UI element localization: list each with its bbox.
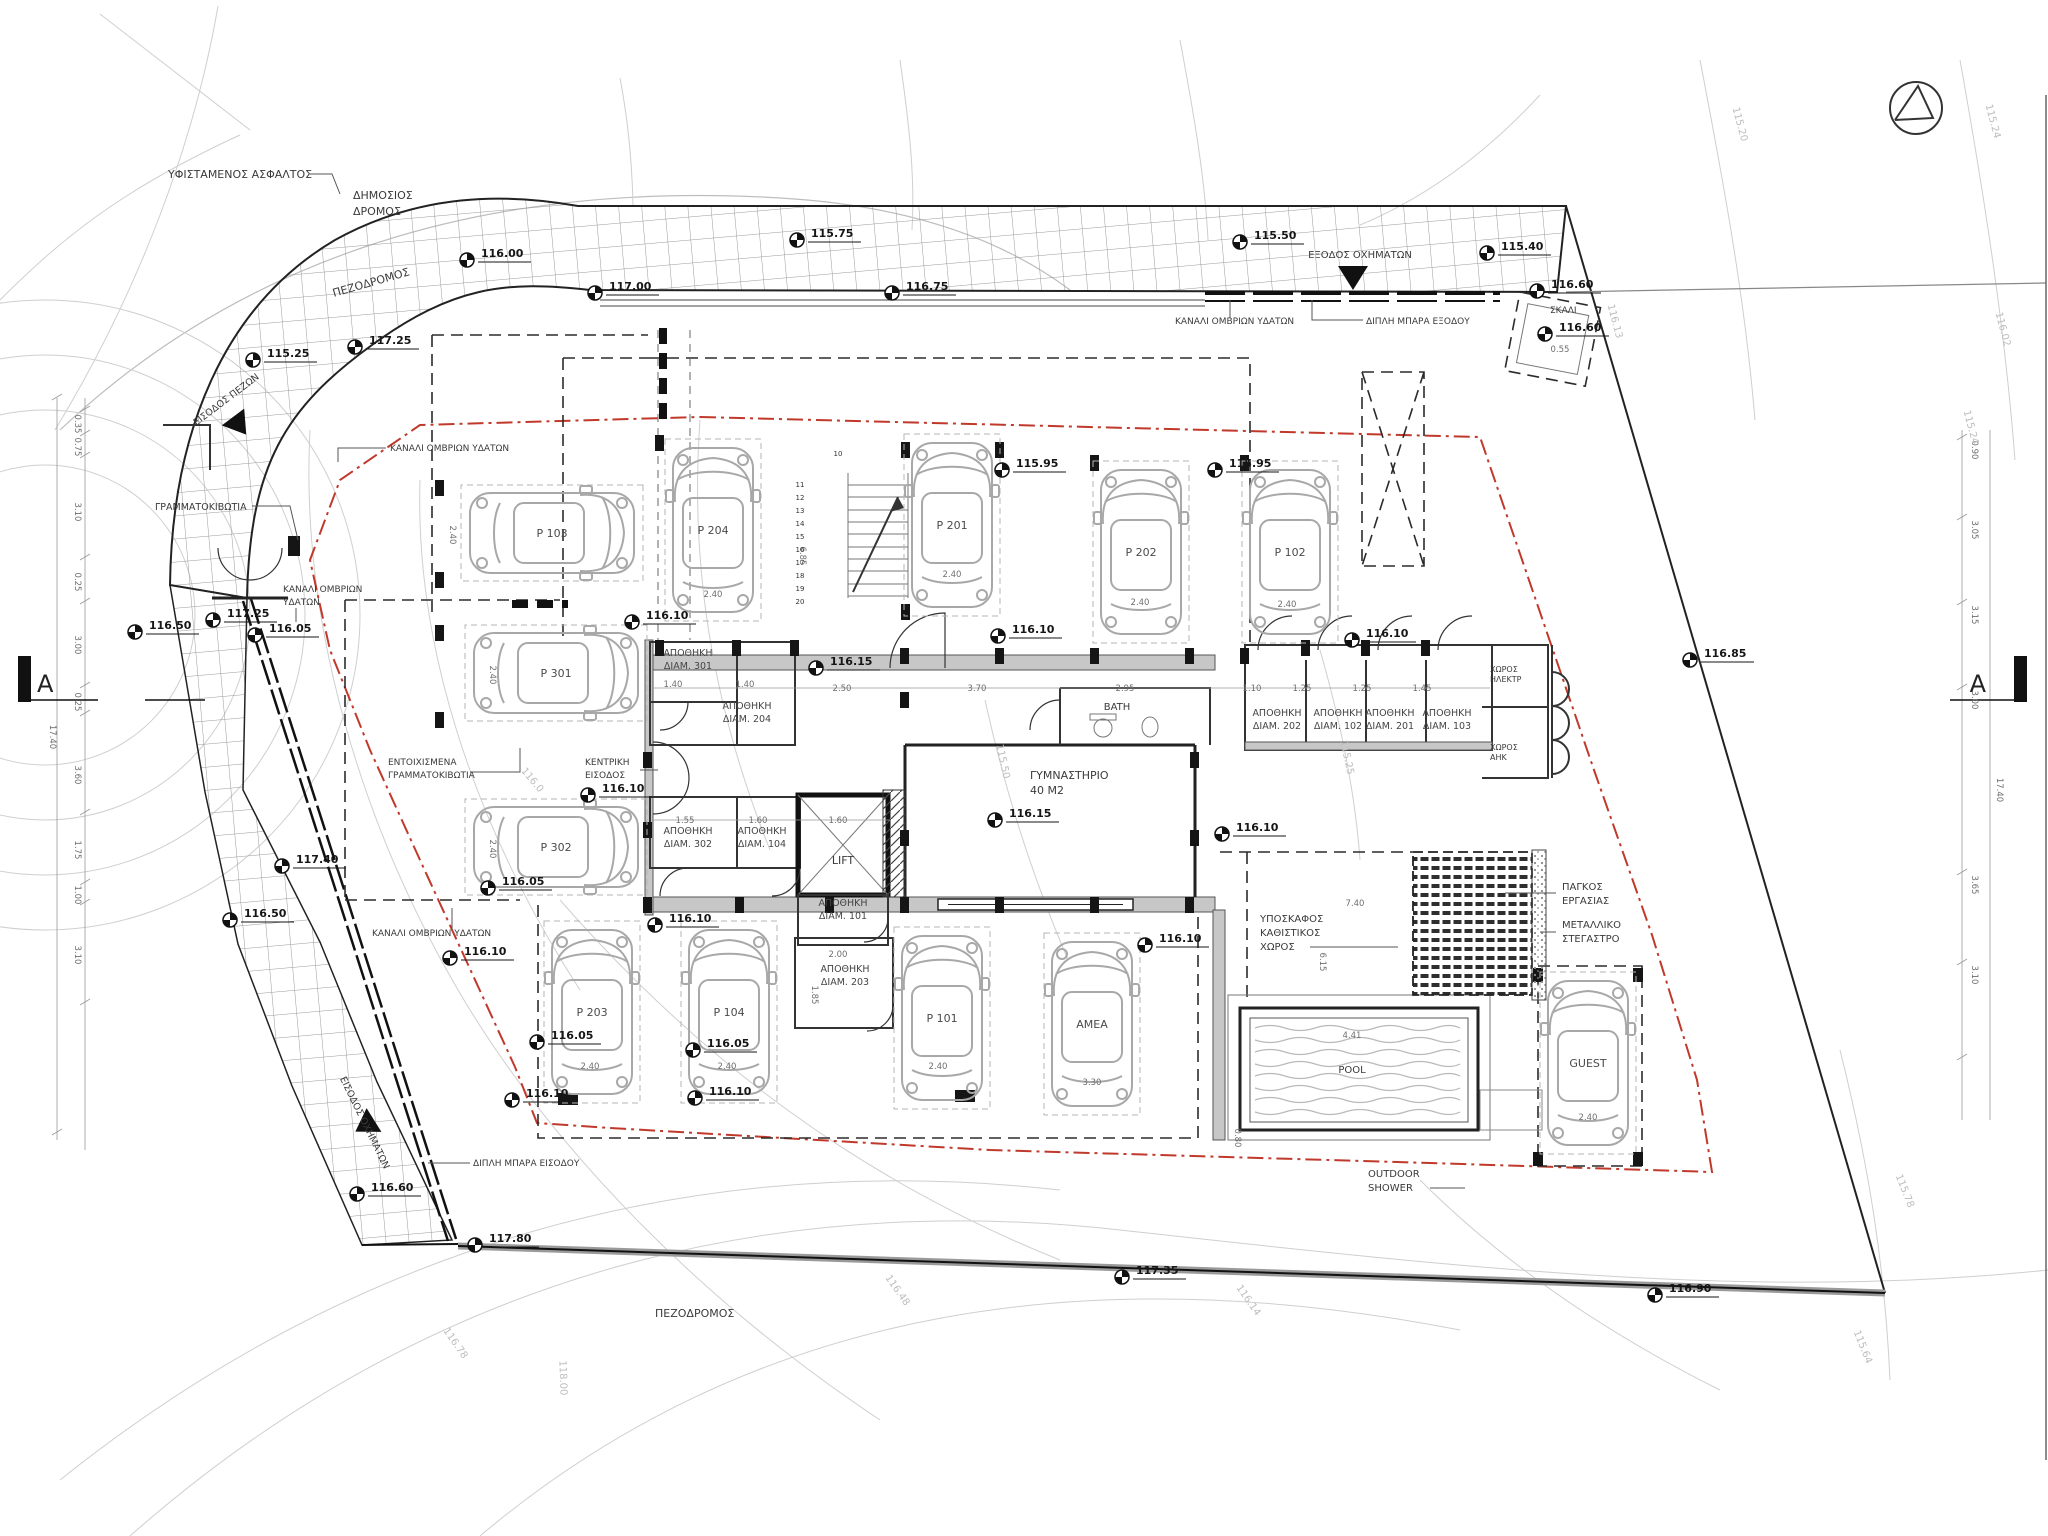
benchmark-icon — [809, 661, 823, 675]
stair-step-number: 15 — [796, 533, 805, 541]
dimension-value: 2.40 — [1278, 600, 1297, 610]
stair-step-number: 19 — [796, 585, 805, 593]
dimension-value: 3.10 — [72, 503, 82, 522]
elevation-value: 116.05 — [551, 1029, 593, 1042]
elevation-value: 115.75 — [811, 227, 853, 240]
stair-step-number: 18 — [796, 572, 805, 580]
elevation-value: 117.80 — [489, 1232, 532, 1245]
plan-label: POOL — [1338, 1065, 1366, 1076]
plan-label: ΓΥΜΝΑΣΤΗΡΙΟ — [1030, 769, 1109, 782]
dimension-value: 3.10 — [1969, 966, 1979, 985]
stair-step-number: 11 — [796, 481, 805, 489]
elevation-value: 116.10 — [1159, 932, 1202, 945]
storage-room-name: ΑΠΟΘΗΚΗ — [820, 964, 869, 975]
dimension-value: 2.40 — [487, 840, 497, 859]
stair-step-number: 13 — [796, 507, 805, 515]
dimension-value: 2.00 — [829, 950, 848, 960]
benchmark-icon — [885, 286, 899, 300]
dimension-value: 1.40 — [736, 680, 755, 690]
plan-label: ΠΕΖΟΔΡΟΜΟΣ — [655, 1307, 734, 1320]
section-letter: A — [37, 670, 54, 698]
benchmark-icon — [530, 1035, 544, 1049]
plan-label: ΗΛΕΚΤΡ — [1490, 675, 1522, 684]
plan-label: OUTDOOR — [1368, 1169, 1420, 1180]
elevation-value: 116.00 — [481, 247, 524, 260]
dimension-value: 2.40 — [718, 1062, 737, 1072]
plan-label: ΕΡΓΑΣΙΑΣ — [1562, 896, 1609, 907]
elevation-value: 116.10 — [1012, 623, 1055, 636]
benchmark-icon — [648, 918, 662, 932]
storage-room-name: ΑΠΟΘΗΚΗ — [663, 826, 712, 837]
storage-room-apartment: ΔΙΑΜ. 203 — [821, 977, 869, 988]
dimension-value: 0.75 — [72, 438, 82, 457]
elevation-value: 116.10 — [526, 1087, 569, 1100]
stair-step-number: 16 — [796, 546, 805, 554]
benchmark-icon — [1538, 327, 1552, 341]
plan-label: ΕΝΤΟΙΧΙΣΜΕΝΑ — [388, 758, 457, 768]
benchmark-icon — [995, 463, 1009, 477]
dimension-value: 2.40 — [943, 570, 962, 580]
elevation-value: 116.10 — [1236, 821, 1279, 834]
storage-room-apartment: ΔΙΑΜ. 103 — [1423, 721, 1471, 732]
elevation-value: 117.35 — [1136, 1264, 1178, 1277]
storage-room-apartment: ΔΙΑΜ. 202 — [1253, 721, 1301, 732]
storage-room-name: ΑΠΟΘΗΚΗ — [1422, 708, 1471, 719]
plan-label: ΧΩΡΟΣ — [1490, 743, 1518, 752]
benchmark-icon — [468, 1238, 482, 1252]
elevation-value: 116.60 — [1559, 321, 1602, 334]
parking-stall-label: P 301 — [540, 667, 571, 680]
elevation-value: 115.40 — [1501, 240, 1544, 253]
parking-stall-label: P 103 — [536, 527, 567, 540]
benchmark-icon — [223, 913, 237, 927]
elevation-value: 116.10 — [464, 945, 507, 958]
dimension-value: 2.40 — [581, 1062, 600, 1072]
benchmark-icon — [1648, 1288, 1662, 1302]
plan-label: ΕΙΣΟΔΟΣ — [585, 771, 625, 781]
plan-label: ΧΩΡΟΣ — [1260, 942, 1295, 953]
storage-room-name: ΑΠΟΘΗΚΗ — [1252, 708, 1301, 719]
dimension-value: 1.40 — [664, 680, 683, 690]
plan-label: ΚΑΝΑΛΙ ΟΜΒΡΙΩΝ ΥΔΑΤΩΝ — [372, 929, 491, 939]
elevation-value: 116.10 — [646, 609, 689, 622]
plan-label: ΣΤΕΓΑΣΤΡΟ — [1562, 934, 1620, 945]
parking-stall-label: GUEST — [1569, 1057, 1607, 1070]
storage-room-name: ΑΠΟΘΗΚΗ — [663, 648, 712, 659]
elevation-value: 117.25 — [227, 607, 269, 620]
dimension-value: 17.40 — [1994, 778, 2004, 802]
stair-step-number: 12 — [796, 494, 805, 502]
elevation-value: 115.95 — [1229, 457, 1271, 470]
dimension-value: 0.55 — [1551, 345, 1570, 355]
dimension-value: 17.40 — [47, 725, 57, 749]
elevation-value: 116.05 — [502, 875, 544, 888]
benchmark-icon — [790, 233, 804, 247]
benchmark-icon — [1115, 1270, 1129, 1284]
plan-label: ΣΚΑΛΙ — [1550, 306, 1577, 316]
dimension-value: 2.40 — [487, 666, 497, 685]
benchmark-icon — [988, 813, 1002, 827]
plan-label: ΔΙΠΛΗ ΜΠΑΡΑ ΕΞΟΔΟΥ — [1366, 317, 1470, 327]
plan-label: ΚΑΝΑΛΙ ΟΜΒΡΙΩΝ ΥΔΑΤΩΝ — [390, 444, 509, 454]
stair-step-number: 14 — [796, 520, 805, 528]
dimension-value: 3.10 — [72, 946, 82, 965]
plan-label: ΕΞΟΔΟΣ ΟΧΗΜΑΤΩΝ — [1308, 250, 1412, 261]
elevation-value: 116.10 — [669, 912, 712, 925]
elevation-value: 116.60 — [371, 1181, 414, 1194]
parking-stall-label: P 204 — [697, 524, 728, 537]
plan-label: ΔΙΠΛΗ ΜΠΑΡΑ ΕΙΣΟΔΟΥ — [473, 1159, 580, 1169]
elevation-value: 116.15 — [830, 655, 872, 668]
plan-label: ΠΑΓΚΟΣ — [1562, 882, 1603, 893]
dimension-value: 0.35 — [72, 415, 82, 434]
plan-label: ΜΕΤΑΛΛΙΚΟ — [1562, 920, 1621, 931]
elevation-value: 116.85 — [1704, 647, 1746, 660]
plan-label: ΥΔΑΤΩΝ — [282, 598, 320, 608]
storage-room-apartment: ΔΙΑΜ. 101 — [819, 911, 867, 922]
storage-room-name: ΑΠΟΘΗΚΗ — [1365, 708, 1414, 719]
benchmark-icon — [348, 340, 362, 354]
benchmark-icon — [991, 629, 1005, 643]
elevation-value: 116.50 — [149, 619, 192, 632]
dimension-value: 3.70 — [968, 684, 987, 694]
plan-label: ΑΗΚ — [1490, 753, 1507, 762]
benchmark-icon — [275, 859, 289, 873]
plan-label: 40 M2 — [1030, 784, 1064, 797]
parking-stall-label: P 203 — [576, 1006, 607, 1019]
elevation-value: 117.40 — [296, 853, 339, 866]
plan-label: ΚΑΝΑΛΙ ΟΜΒΡΙΩΝ — [283, 585, 362, 595]
dimension-value: 3.60 — [72, 766, 82, 785]
dimension-value: 3.30 — [1083, 1078, 1102, 1088]
elevation-value: 116.15 — [1009, 807, 1051, 820]
dimension-value: 0.80 — [1232, 1129, 1242, 1148]
elevation-value: 115.50 — [1254, 229, 1297, 242]
plan-label: ΚΑΘΙΣΤΙΚΟΣ — [1260, 928, 1320, 939]
benchmark-icon — [481, 881, 495, 895]
plan-label: ΓΡΑΜΜΑΤΟΚΙΒΩΤΙΑ — [388, 771, 476, 781]
elevation-value: 117.25 — [369, 334, 411, 347]
benchmark-icon — [128, 625, 142, 639]
plan-label: ΓΡΑΜΜΑΤΟΚΙΒΩΤΙΑ — [155, 502, 247, 513]
benchmark-icon — [625, 615, 639, 629]
benchmark-icon — [1683, 653, 1697, 667]
dimension-value: 7.40 — [1346, 899, 1365, 909]
benchmark-icon — [248, 628, 262, 642]
dimension-value: 2.40 — [1579, 1113, 1598, 1123]
plan-label: SHOWER — [1368, 1183, 1413, 1194]
benchmark-icon — [350, 1187, 364, 1201]
dimension-value: 1.00 — [72, 886, 82, 905]
dimension-value: 1.75 — [72, 841, 82, 860]
parking-stall-label: P 202 — [1125, 546, 1156, 559]
elevation-value: 116.60 — [1551, 278, 1594, 291]
dimension-value: 2.50 — [833, 684, 852, 694]
plan-label: LIFT — [832, 854, 855, 867]
stair-step-number: 17 — [796, 559, 805, 567]
storage-room-name: ΑΠΟΘΗΚΗ — [722, 701, 771, 712]
parking-stall-label: P 102 — [1274, 546, 1305, 559]
dimension-value: 0.25 — [72, 693, 82, 712]
benchmark-icon — [1480, 246, 1494, 260]
benchmark-icon — [246, 353, 260, 367]
elevation-value: 116.90 — [1669, 1282, 1712, 1295]
dimension-value: 3.15 — [1969, 606, 1979, 625]
dimension-value: 1.25 — [1353, 684, 1372, 694]
dimension-value: 2.40 — [447, 526, 457, 545]
elevation-value: 116.75 — [906, 280, 948, 293]
plan-label: ΥΠΟΣΚΑΦΟΣ — [1259, 914, 1323, 925]
storage-room-apartment: ΔΙΑΜ. 302 — [664, 839, 712, 850]
plan-label: ΧΩΡΟΣ — [1490, 665, 1518, 674]
elevation-value: 116.05 — [269, 622, 311, 635]
benchmark-icon — [588, 286, 602, 300]
plan-label: ΚΑΝΑΛΙ ΟΜΒΡΙΩΝ ΥΔΑΤΩΝ — [1175, 317, 1294, 327]
dimension-value: 2.40 — [1131, 598, 1150, 608]
elevation-value: 117.00 — [609, 280, 652, 293]
dimension-value: 2.95 — [1116, 684, 1135, 694]
dimension-value: 0.25 — [72, 573, 82, 592]
elevation-value: 115.95 — [1016, 457, 1058, 470]
parking-stall-label: P 201 — [936, 519, 967, 532]
dimension-value: 1.25 — [1293, 684, 1312, 694]
benchmark-icon — [581, 788, 595, 802]
dimension-value: 2.40 — [704, 590, 723, 600]
storage-room-apartment: ΔΙΑΜ. 301 — [664, 661, 712, 672]
storage-room-apartment: ΔΙΑΜ. 104 — [738, 839, 786, 850]
dimension-value: 2.40 — [929, 1062, 948, 1072]
elevation-value: 116.10 — [709, 1085, 752, 1098]
storage-room-name: ΑΠΟΘΗΚΗ — [818, 898, 867, 909]
dimension-value: 3.00 — [72, 636, 82, 655]
dimension-value: 1.45 — [1413, 684, 1432, 694]
dimension-value: 4.41 — [1343, 1031, 1362, 1041]
benchmark-icon — [1530, 284, 1544, 298]
site-plan-drawing: A A P 103P 204P 201P 202P 102P 301P 302P… — [0, 0, 2048, 1536]
dimension-value: 1.55 — [676, 816, 695, 826]
benchmark-icon — [1345, 633, 1359, 647]
benchmark-icon — [443, 951, 457, 965]
parking-stall-label: P 104 — [713, 1006, 744, 1019]
site-plan-page: A A P 103P 204P 201P 202P 102P 301P 302P… — [0, 0, 2048, 1536]
dimension-value: 3.65 — [1969, 876, 1979, 895]
dimension-value: 1.10 — [1243, 684, 1262, 694]
storage-room-name: ΑΠΟΘΗΚΗ — [737, 826, 786, 837]
benchmark-icon — [688, 1091, 702, 1105]
plan-label: BATH — [1104, 702, 1131, 713]
parking-stall-label: P 302 — [540, 841, 571, 854]
storage-room-name: ΑΠΟΘΗΚΗ — [1313, 708, 1362, 719]
elevation-value: 116.10 — [602, 782, 645, 795]
benchmark-icon — [686, 1043, 700, 1057]
elevation-value: 115.25 — [267, 347, 309, 360]
plan-label: ΥΦΙΣΤΑΜΕΝΟΣ ΑΣΦΑΛΤΟΣ — [167, 168, 312, 181]
stair-step-number: 10 — [834, 450, 843, 458]
storage-room-apartment: ΔΙΑΜ. 204 — [723, 714, 771, 725]
contour-elevation: 118.00 — [556, 1360, 568, 1395]
benchmark-icon — [1208, 463, 1222, 477]
pergola-canopy — [1413, 852, 1532, 995]
plan-label: ΚΕΝΤΡΙΚΗ — [585, 758, 630, 768]
stair-step-number: 20 — [796, 598, 805, 606]
benchmark-icon — [1138, 938, 1152, 952]
dimension-value: 3.00 — [1969, 691, 1979, 710]
elevation-value: 116.05 — [707, 1037, 749, 1050]
parking-stall-label: AMEA — [1076, 1018, 1108, 1031]
dimension-value: 1.85 — [809, 986, 819, 1005]
benchmark-icon — [505, 1093, 519, 1107]
benchmark-icon — [1233, 235, 1247, 249]
benchmark-icon — [1215, 827, 1229, 841]
plan-label: ΔΗΜΟΣΙΟΣ — [353, 189, 413, 202]
benchmark-icon — [460, 253, 474, 267]
elevation-value: 116.50 — [244, 907, 287, 920]
work-bench — [1532, 850, 1546, 1000]
storage-room-apartment: ΔΙΑΜ. 102 — [1314, 721, 1362, 732]
dimension-value: 1.60 — [749, 816, 768, 826]
parking-stall-label: P 101 — [926, 1012, 957, 1025]
dimension-value: 1.60 — [829, 816, 848, 826]
plan-label: ΔΡΟΜΟΣ — [353, 205, 401, 218]
dimension-value: 6.15 — [1317, 953, 1327, 972]
storage-room-apartment: ΔΙΑΜ. 201 — [1366, 721, 1414, 732]
benchmark-icon — [206, 613, 220, 627]
elevation-value: 116.10 — [1366, 627, 1409, 640]
dimension-value: 3.05 — [1969, 521, 1979, 540]
